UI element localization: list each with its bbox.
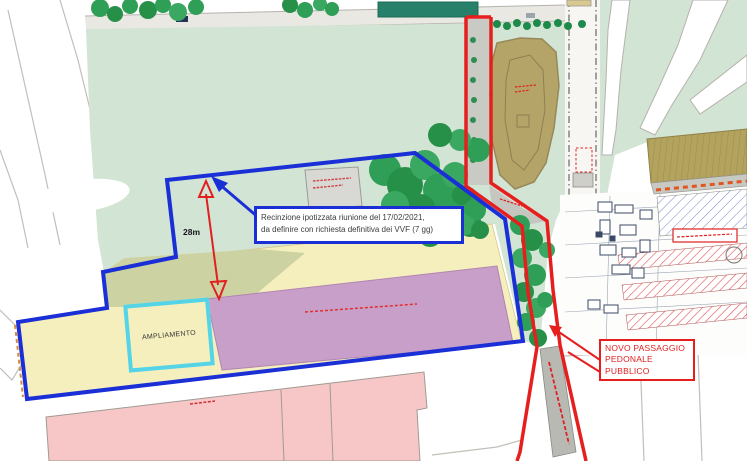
tan-building (647, 129, 747, 194)
expansion-label: AMPLIAMENTO (142, 329, 197, 341)
passage-label-box: NOVO PASSAGGIO PEDONALE PUBBLICO (599, 339, 695, 381)
passage-label-line1: NOVO PASSAGGIO (605, 343, 689, 354)
site-plan-page: Recinzione ipotizzata riunione del 17/02… (0, 0, 747, 461)
cad-plan-area (560, 186, 747, 355)
field-gray-box (305, 167, 362, 209)
hedge (378, 2, 478, 17)
expansion-highlight-box: AMPLIAMENTO (123, 297, 215, 372)
fence-note-box: Recinzione ipotizzata riunione del 17/02… (254, 206, 464, 244)
passage-label-line3: PUBBLICO (605, 366, 689, 377)
dimension-label: 28m (183, 227, 200, 237)
fence-note-line1: Recinzione ipotizzata riunione del 17/02… (261, 212, 457, 224)
passage-label-line2: PEDONALE (605, 354, 689, 365)
fence-note-line2: da definire con richiesta definitiva dei… (261, 224, 457, 236)
